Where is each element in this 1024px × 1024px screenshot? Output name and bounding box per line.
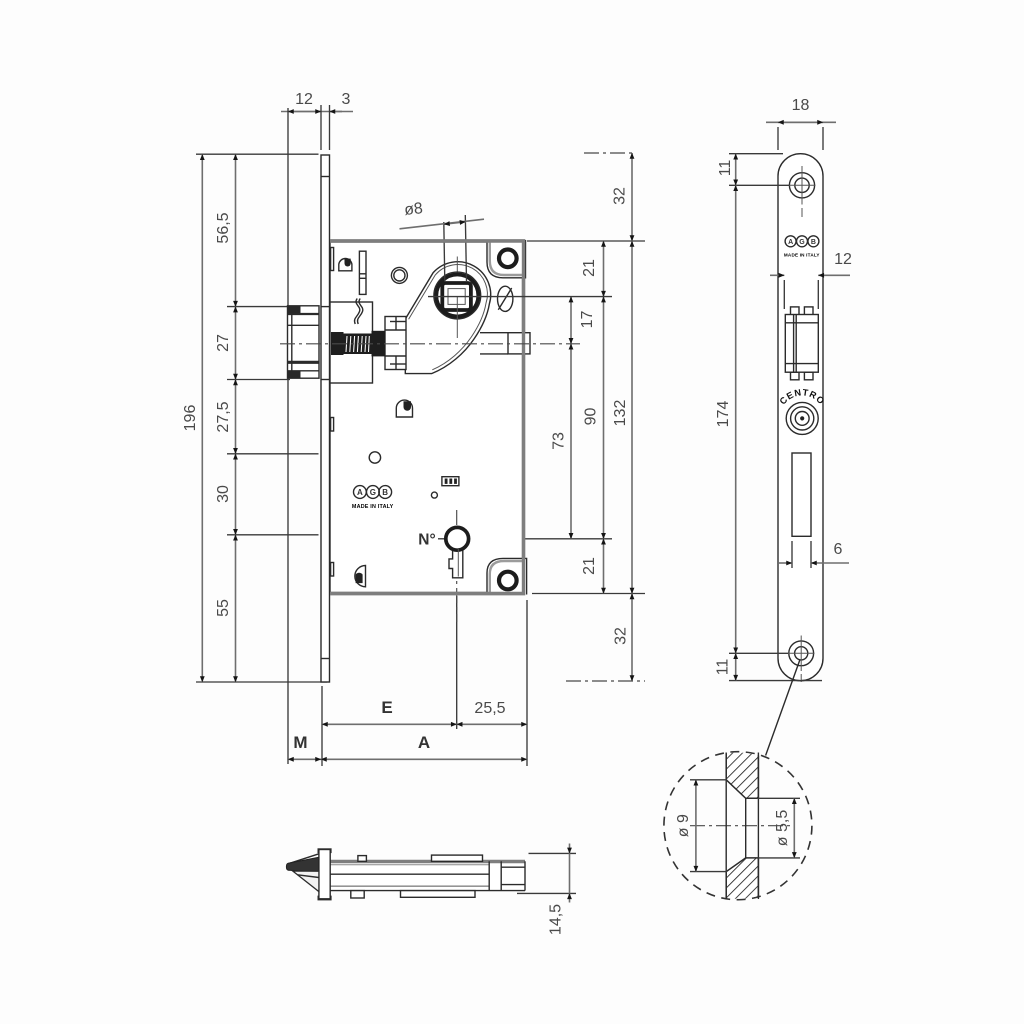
svg-text:ø 5,5: ø 5,5 bbox=[774, 810, 791, 847]
svg-text:17: 17 bbox=[579, 311, 596, 329]
svg-text:12: 12 bbox=[834, 251, 852, 268]
svg-text:90: 90 bbox=[583, 408, 600, 426]
svg-text:21: 21 bbox=[581, 259, 598, 277]
svg-text:3: 3 bbox=[342, 91, 351, 108]
svg-text:174: 174 bbox=[715, 401, 732, 428]
svg-text:32: 32 bbox=[612, 187, 629, 205]
svg-text:27,5: 27,5 bbox=[215, 401, 232, 432]
svg-text:A: A bbox=[357, 488, 363, 497]
svg-text:A: A bbox=[788, 239, 793, 246]
svg-text:ø8: ø8 bbox=[403, 200, 423, 219]
svg-text:132: 132 bbox=[612, 400, 629, 427]
svg-text:B: B bbox=[382, 488, 388, 497]
svg-text:73: 73 bbox=[551, 432, 568, 450]
svg-text:32: 32 bbox=[613, 627, 630, 645]
svg-text:E: E bbox=[381, 698, 392, 717]
svg-text:G: G bbox=[799, 239, 805, 246]
svg-text:56,5: 56,5 bbox=[215, 212, 232, 243]
svg-text:MADE IN ITALY: MADE IN ITALY bbox=[352, 504, 394, 510]
svg-text:27: 27 bbox=[215, 334, 232, 352]
svg-text:MADE IN ITALY: MADE IN ITALY bbox=[784, 253, 820, 258]
svg-text:14,5: 14,5 bbox=[548, 904, 565, 935]
svg-text:M: M bbox=[293, 733, 307, 752]
svg-text:11: 11 bbox=[715, 659, 732, 676]
svg-text:B: B bbox=[811, 239, 816, 246]
svg-text:11: 11 bbox=[717, 160, 734, 177]
svg-text:25,5: 25,5 bbox=[474, 700, 505, 717]
svg-text:A: A bbox=[418, 733, 430, 752]
svg-text:G: G bbox=[370, 488, 376, 497]
svg-text:6: 6 bbox=[834, 541, 843, 558]
svg-text:18: 18 bbox=[792, 97, 810, 114]
svg-text:N°: N° bbox=[418, 532, 435, 549]
svg-text:12: 12 bbox=[295, 91, 313, 108]
svg-text:30: 30 bbox=[215, 485, 232, 503]
svg-text:196: 196 bbox=[182, 405, 199, 432]
svg-text:ø 9: ø 9 bbox=[675, 814, 692, 837]
svg-text:55: 55 bbox=[215, 599, 232, 617]
svg-text:21: 21 bbox=[581, 557, 598, 575]
